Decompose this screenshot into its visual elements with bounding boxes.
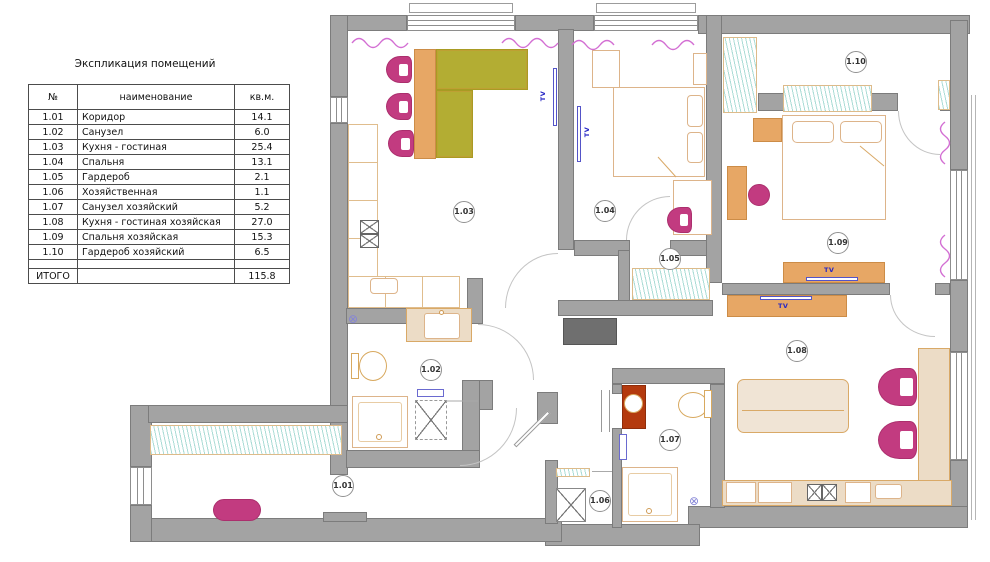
bed-fold-line — [658, 146, 884, 177]
floor-plan-page: Экспликация помещений № наименование кв.… — [0, 0, 990, 562]
curtain-icon — [352, 39, 950, 278]
plan-decorations — [0, 0, 990, 562]
